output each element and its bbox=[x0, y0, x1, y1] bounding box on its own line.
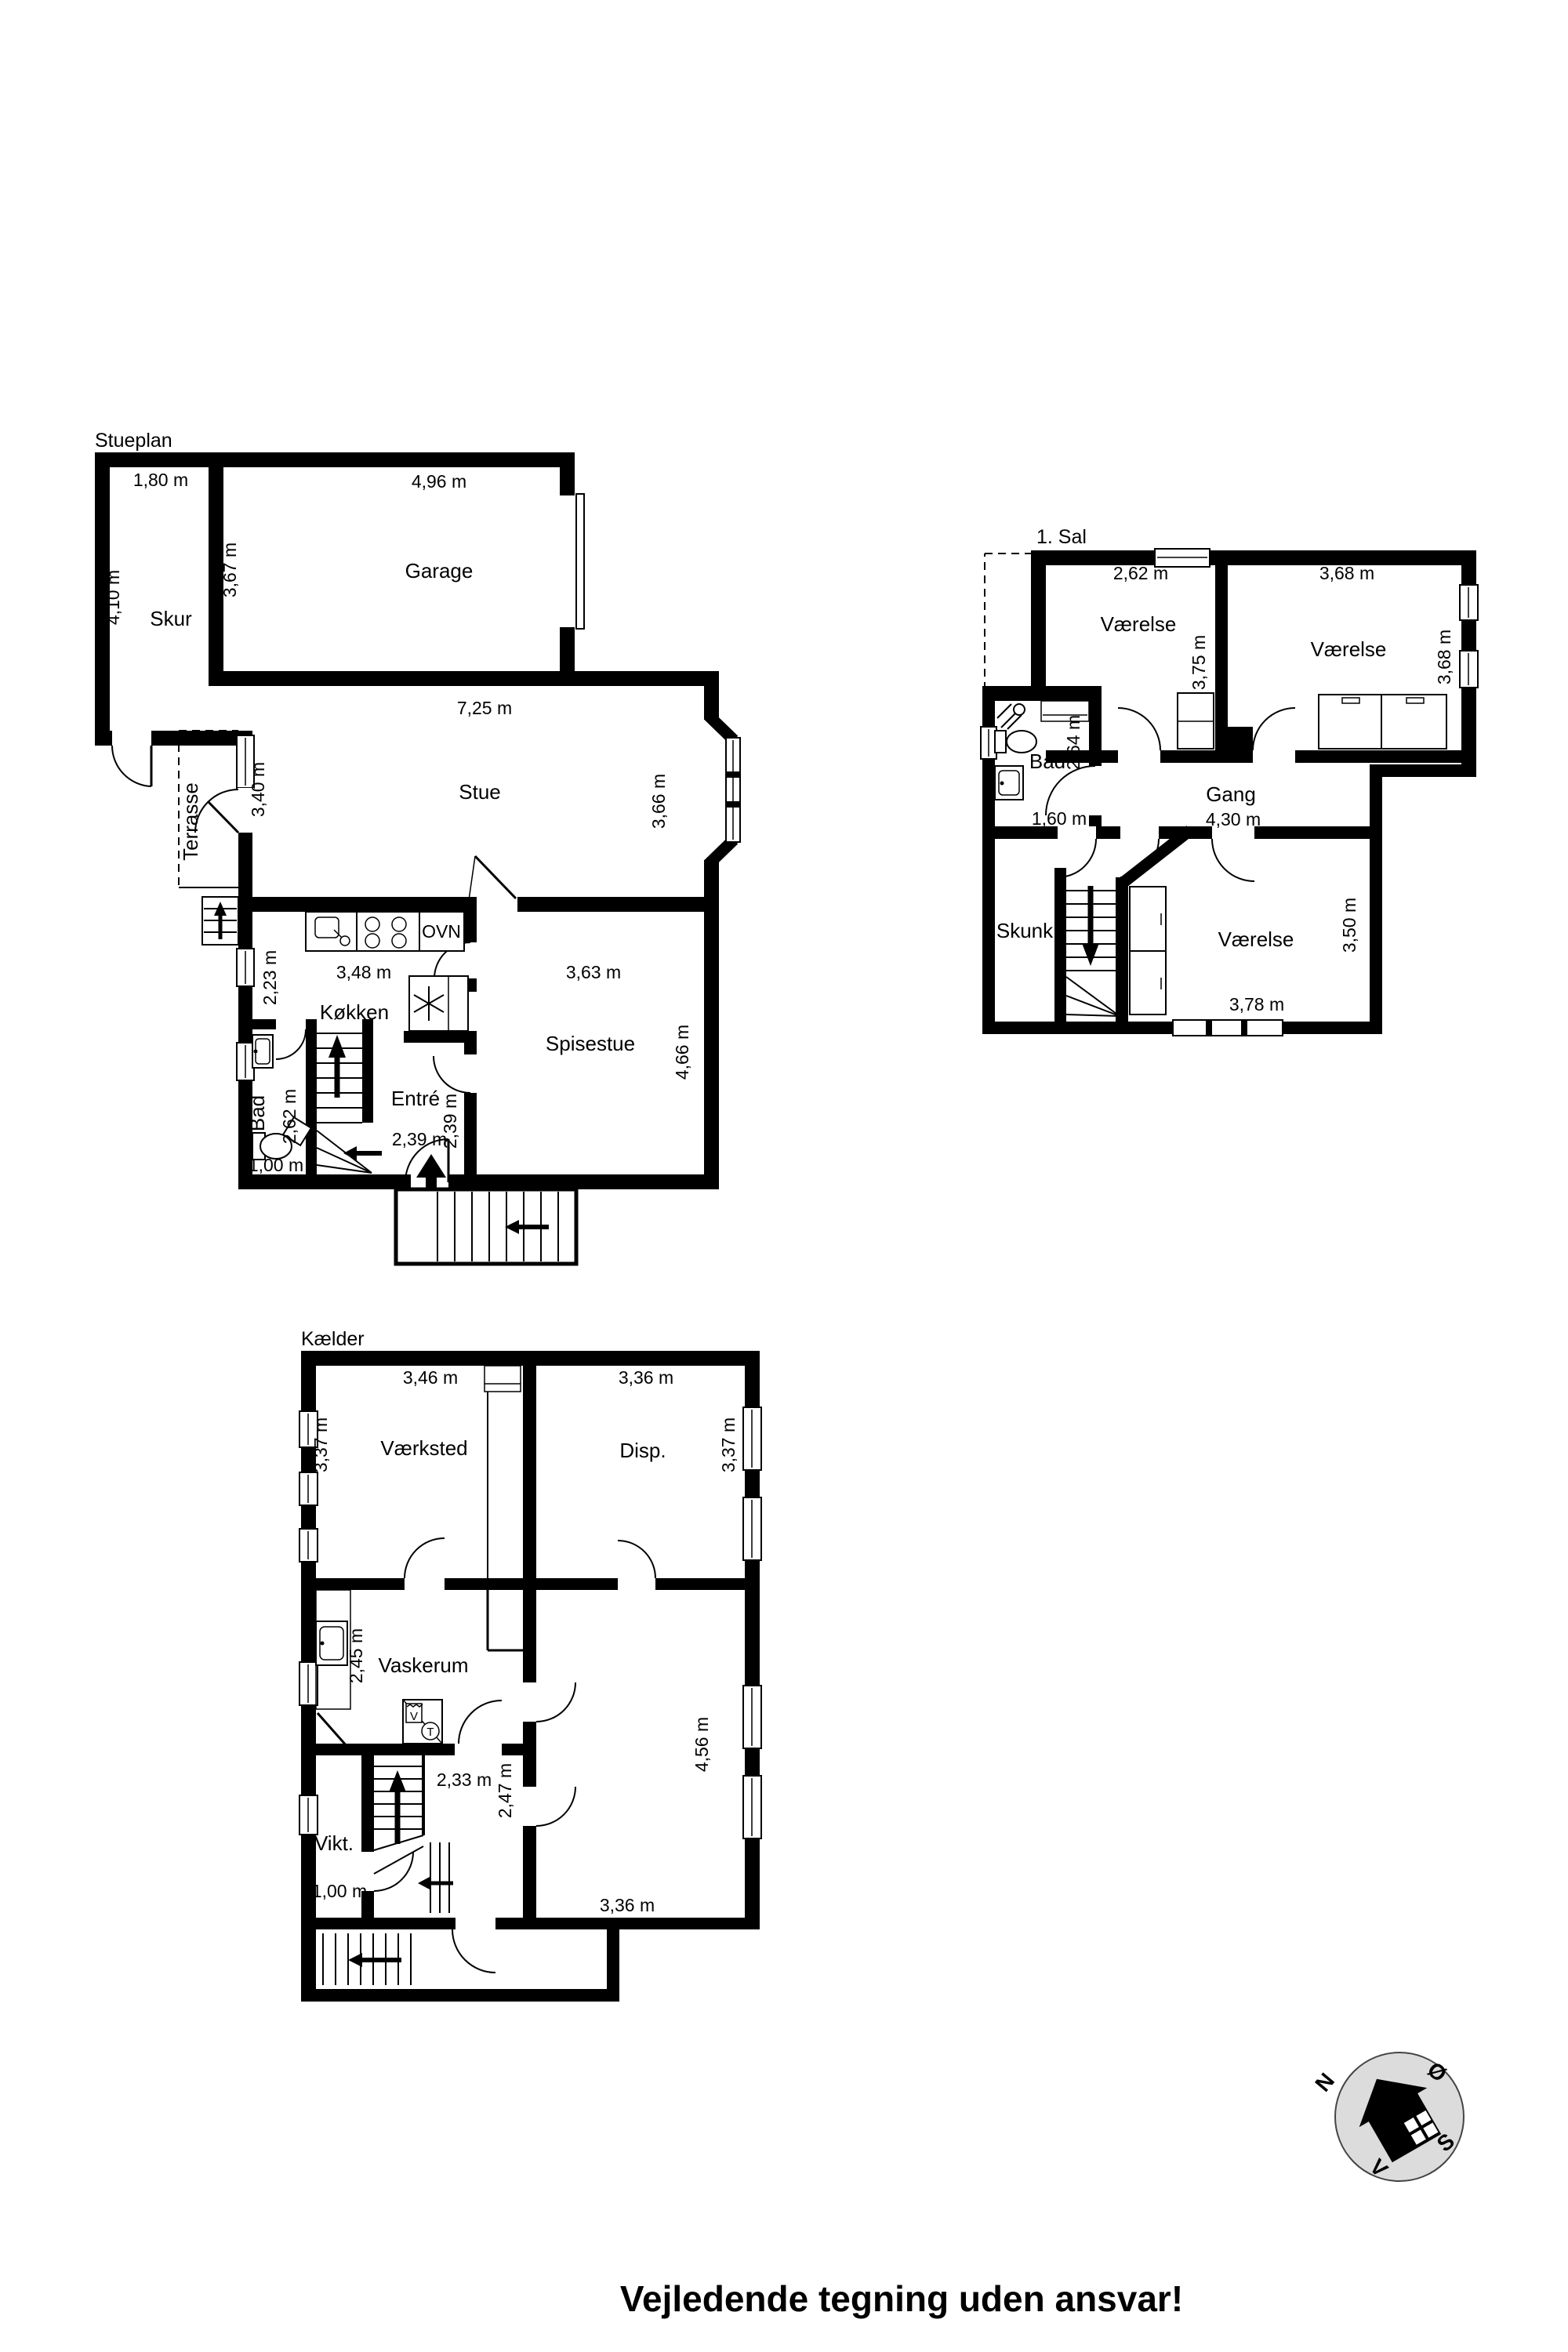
room-label: Bad bbox=[245, 1095, 269, 1131]
room-label: Køkken bbox=[320, 1000, 389, 1024]
dim-label: 2,64 m bbox=[1063, 715, 1083, 770]
desk-icon bbox=[1319, 695, 1446, 749]
sink-icon bbox=[995, 766, 1023, 800]
dim-label: 2,23 m bbox=[260, 950, 280, 1005]
dim-label: 3,78 m bbox=[1229, 994, 1284, 1014]
floor-label: 1. Sal bbox=[1036, 526, 1087, 548]
sink-icon bbox=[252, 1035, 273, 1068]
compass-north-label: N bbox=[1310, 2068, 1339, 2096]
kitchen-counter: OVN bbox=[306, 912, 464, 951]
dim-label: 3,68 m bbox=[1319, 563, 1374, 583]
room-label: Værelse bbox=[1218, 927, 1294, 951]
walls bbox=[301, 1351, 760, 2002]
room-label: Spisestue bbox=[546, 1032, 635, 1055]
room-label: Entré bbox=[391, 1087, 440, 1110]
garage-door-icon bbox=[576, 494, 584, 629]
floorplan-sheet: OVN bbox=[0, 0, 1568, 2352]
dim-label: 4,30 m bbox=[1206, 809, 1261, 829]
room-label: Vikt. bbox=[314, 1831, 354, 1855]
floor-label: Kælder bbox=[301, 1328, 365, 1350]
room-label: Skur bbox=[150, 607, 192, 630]
dim-label: 4,10 m bbox=[103, 570, 123, 625]
stairs-down-arrow bbox=[1082, 886, 1099, 966]
floor-label: Stueplan bbox=[95, 430, 172, 452]
dim-label: 3,50 m bbox=[1339, 898, 1359, 953]
washer-label: V bbox=[410, 1710, 418, 1723]
dim-label: 3,66 m bbox=[648, 774, 669, 829]
closet-icon bbox=[1130, 887, 1166, 1014]
stairs-left-arrow bbox=[418, 1877, 453, 1889]
bay-window bbox=[708, 715, 740, 865]
room-label: Vaskerum bbox=[378, 1653, 468, 1677]
dim-label: 3,68 m bbox=[1434, 630, 1454, 684]
labels: Stueplan 1,80 m 4,10 m Skur 4,96 m Garag… bbox=[95, 430, 692, 1175]
fridge-icon bbox=[409, 976, 468, 1031]
dim-label: 2,47 m bbox=[495, 1763, 515, 1818]
stairs-left-arrow bbox=[343, 1146, 382, 1160]
dim-label: 3,67 m bbox=[220, 543, 240, 597]
oven-label: OVN bbox=[422, 921, 461, 942]
dim-label: 2,39 m bbox=[392, 1129, 447, 1149]
dim-label: 1,80 m bbox=[133, 470, 188, 490]
room-label: Stue bbox=[459, 780, 501, 804]
dim-label: 3,46 m bbox=[403, 1367, 458, 1388]
attic-outline bbox=[985, 554, 1038, 690]
floor-plan-1-sal: 1. Sal 2,62 m Værelse 3,75 m 3,68 m Være… bbox=[968, 517, 1517, 1051]
room-label: Gang bbox=[1206, 782, 1256, 806]
shower-icon bbox=[997, 704, 1025, 729]
dim-label: 2,39 m bbox=[440, 1094, 460, 1149]
stairs-up-arrow bbox=[328, 1035, 346, 1098]
dim-label: 3,63 m bbox=[566, 962, 621, 982]
dim-label: 4,66 m bbox=[672, 1025, 692, 1080]
dim-label: 1,00 m bbox=[312, 1881, 367, 1901]
room-label: Skunk bbox=[996, 919, 1054, 942]
shelf-icon bbox=[485, 1366, 521, 1392]
floor-plan-stueplan: OVN bbox=[78, 427, 760, 1282]
room-label: Terrasse bbox=[179, 782, 202, 861]
dim-label: 2,45 m bbox=[346, 1628, 366, 1683]
terrace-stairs bbox=[202, 897, 238, 945]
dim-label: 3,37 m bbox=[310, 1417, 331, 1472]
dim-label: 3,36 m bbox=[619, 1367, 673, 1388]
disclaimer-text: Vejledende tegning uden ansvar! bbox=[620, 2278, 1183, 2320]
dim-label: 1,00 m bbox=[249, 1155, 303, 1175]
room-label: Værksted bbox=[380, 1436, 467, 1460]
room-label: Garage bbox=[405, 559, 474, 583]
room-label: Værelse bbox=[1101, 612, 1177, 636]
exterior-stairs bbox=[323, 1933, 411, 1985]
compass: N Ø S V bbox=[1301, 2007, 1490, 2195]
dim-label: 7,25 m bbox=[457, 698, 512, 718]
dim-label: 3,75 m bbox=[1189, 635, 1209, 690]
room-label: Disp. bbox=[619, 1439, 666, 1462]
dim-label: 2,33 m bbox=[437, 1769, 492, 1790]
interior-stairs bbox=[1066, 886, 1120, 1016]
floor-plan-kaelder: V T bbox=[290, 1329, 800, 2015]
dim-label: 2,62 m bbox=[1113, 563, 1168, 583]
stairs-exit-arrow bbox=[348, 1953, 401, 1967]
stairs-up-arrow bbox=[389, 1770, 406, 1844]
dim-label: 4,56 m bbox=[691, 1717, 712, 1772]
room-label: Bad bbox=[1029, 750, 1065, 773]
entry-stairs bbox=[396, 1189, 576, 1264]
washer-dryer-icon: V T bbox=[403, 1700, 442, 1744]
room-label: Værelse bbox=[1311, 637, 1387, 661]
dim-label: 3,37 m bbox=[718, 1417, 739, 1472]
dim-label: 2,62 m bbox=[279, 1089, 299, 1144]
dim-label: 3,36 m bbox=[600, 1895, 655, 1915]
dim-label: 3,40 m bbox=[248, 762, 268, 817]
furniture bbox=[1130, 693, 1446, 1014]
dim-label: 1,60 m bbox=[1032, 808, 1087, 829]
closet-icon bbox=[1178, 693, 1214, 749]
dim-label: 3,48 m bbox=[336, 962, 391, 982]
dryer-label: T bbox=[426, 1726, 434, 1739]
dim-label: 4,96 m bbox=[412, 471, 466, 492]
